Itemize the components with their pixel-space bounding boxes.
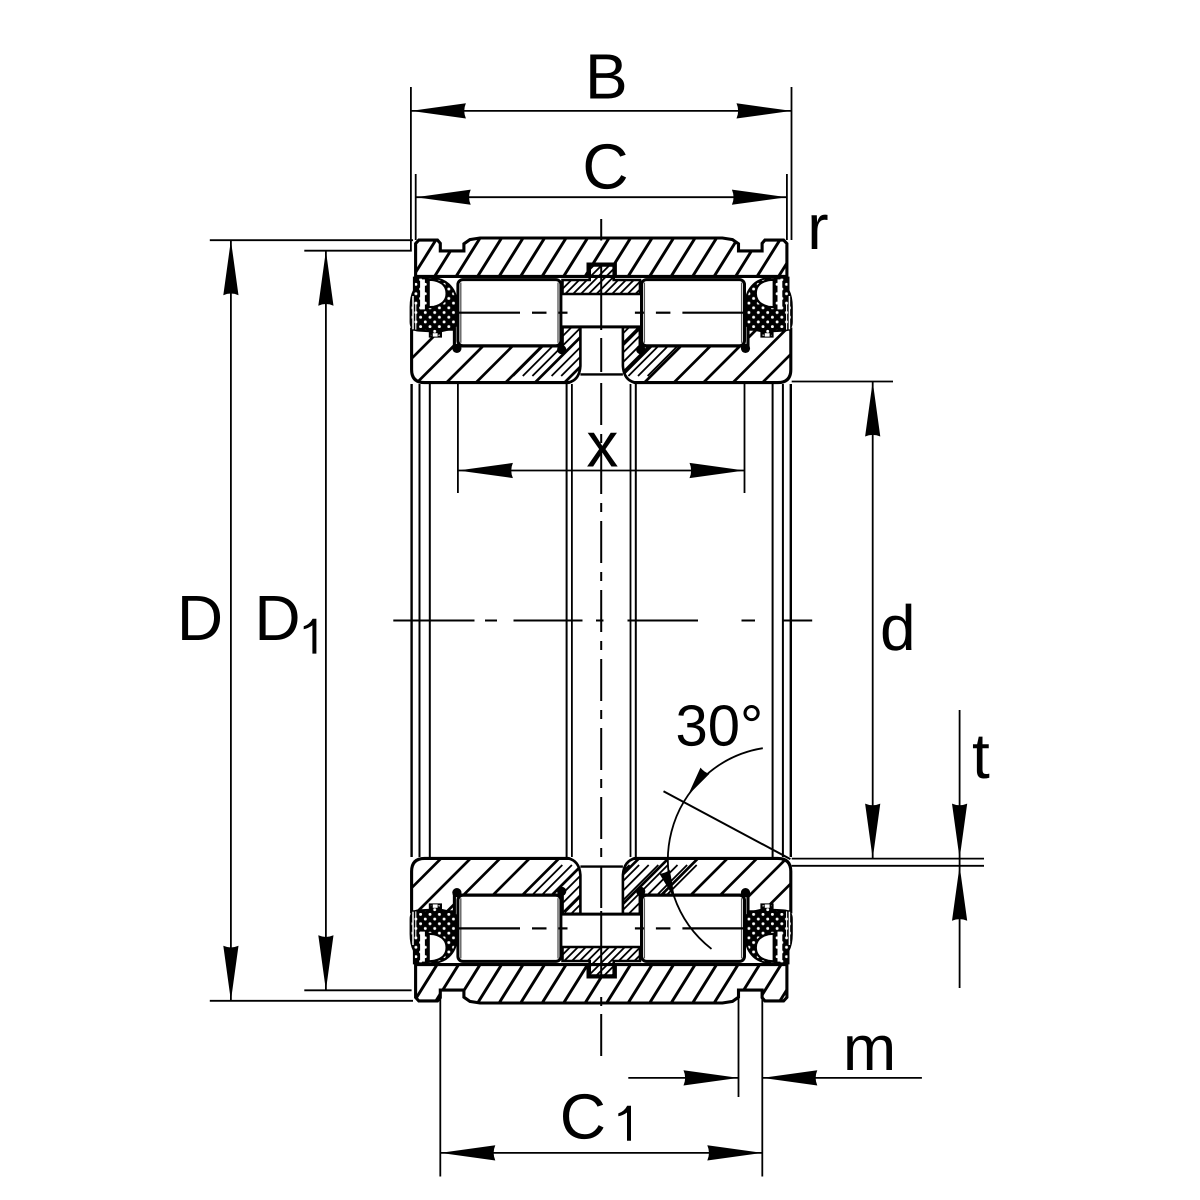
svg-text:r: r [807,191,828,263]
svg-text:C: C [582,131,628,203]
svg-text:m: m [843,1012,896,1084]
svg-text:D: D [177,582,223,654]
svg-text:d: d [880,592,916,664]
svg-text:C: C [560,1080,606,1152]
svg-text:B: B [585,41,628,113]
svg-text:D: D [254,582,300,654]
svg-text:x: x [586,409,618,481]
svg-text:30°: 30° [675,693,763,758]
svg-text:t: t [972,720,990,792]
